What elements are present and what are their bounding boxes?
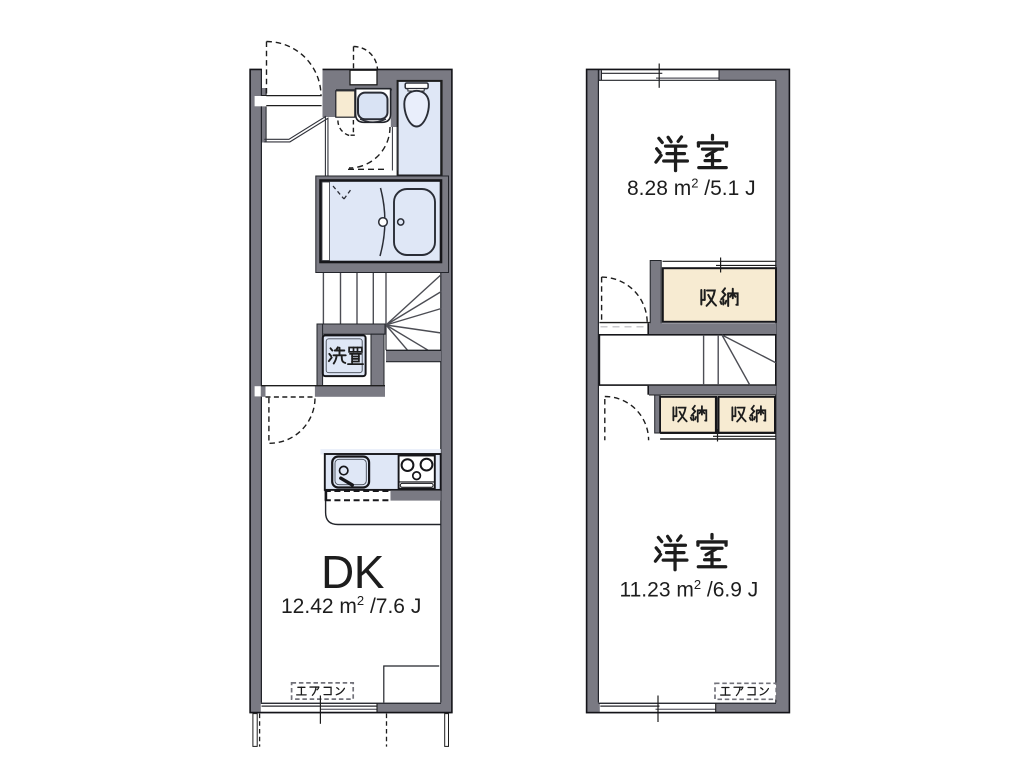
svg-text:11.23 m2 /6.9 J: 11.23 m2 /6.9 J bbox=[620, 577, 759, 602]
svg-text:12.42 m2 /7.6 J: 12.42 m2 /7.6 J bbox=[281, 593, 421, 618]
svg-text:DK: DK bbox=[321, 546, 385, 598]
